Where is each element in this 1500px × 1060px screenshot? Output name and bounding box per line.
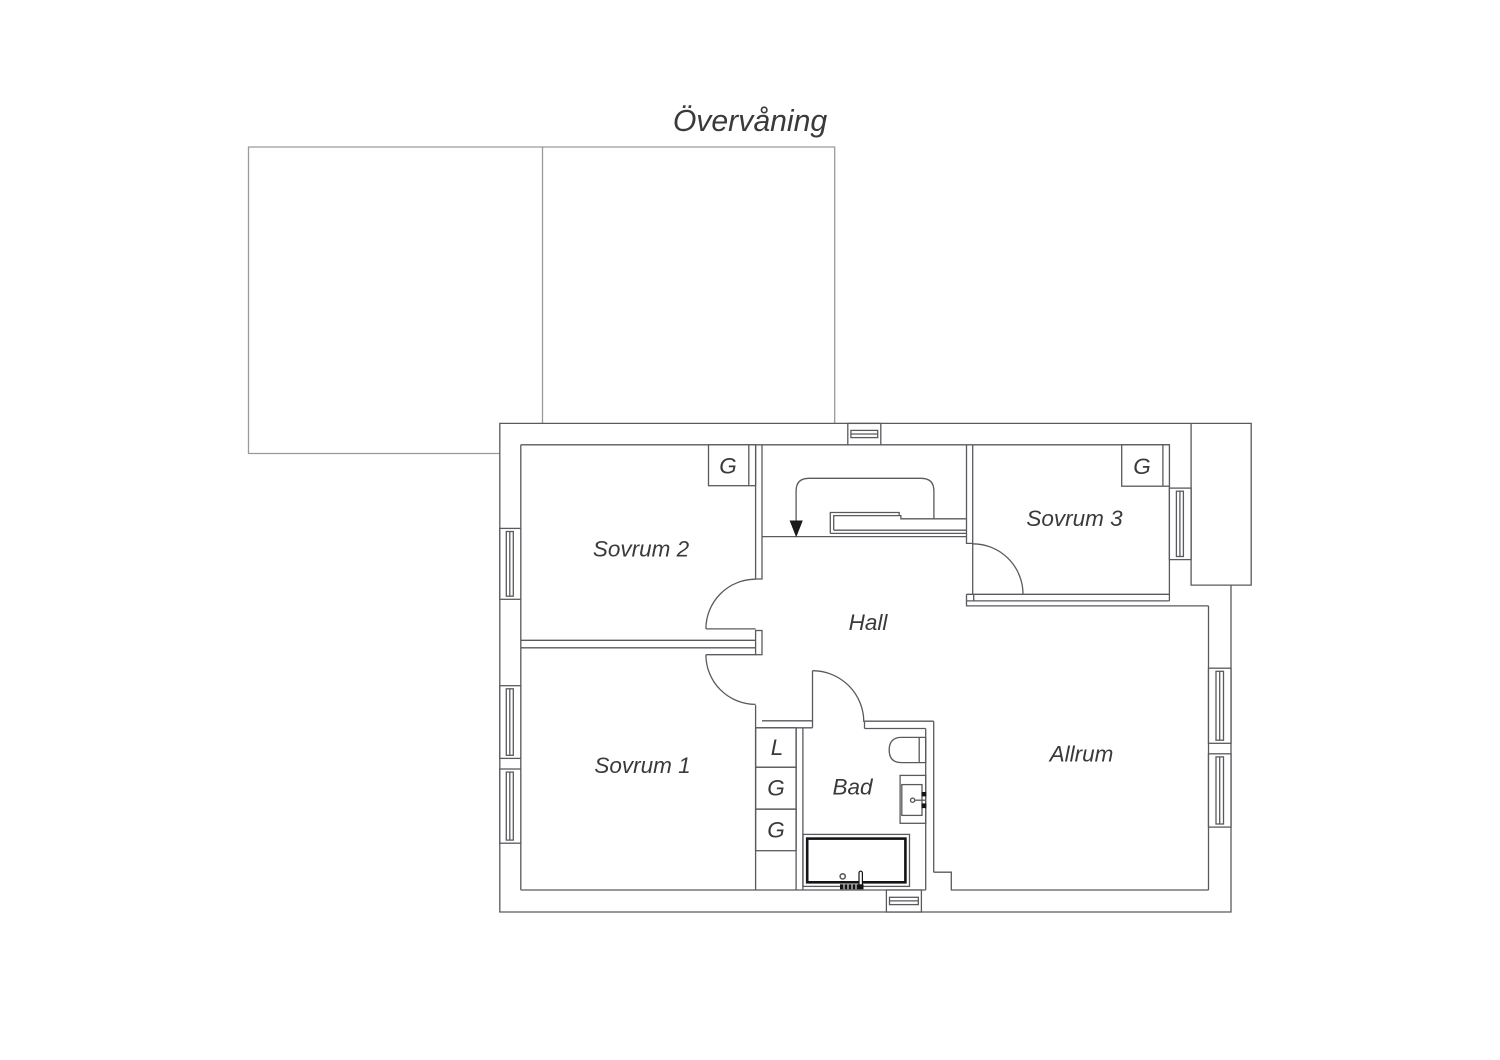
svg-text:G: G xyxy=(767,817,785,842)
svg-text:Övervåning: Övervåning xyxy=(673,105,828,138)
svg-text:Sovrum 3: Sovrum 3 xyxy=(1026,506,1123,531)
svg-text:Sovrum 2: Sovrum 2 xyxy=(593,537,690,562)
svg-text:L: L xyxy=(771,735,784,760)
svg-text:Sovrum 1: Sovrum 1 xyxy=(594,753,690,778)
svg-text:G: G xyxy=(1133,454,1151,479)
svg-text:G: G xyxy=(767,776,785,801)
svg-text:G: G xyxy=(719,454,737,479)
svg-text:Hall: Hall xyxy=(849,610,889,635)
svg-text:Allrum: Allrum xyxy=(1048,742,1114,767)
svg-text:Bad: Bad xyxy=(832,775,874,800)
